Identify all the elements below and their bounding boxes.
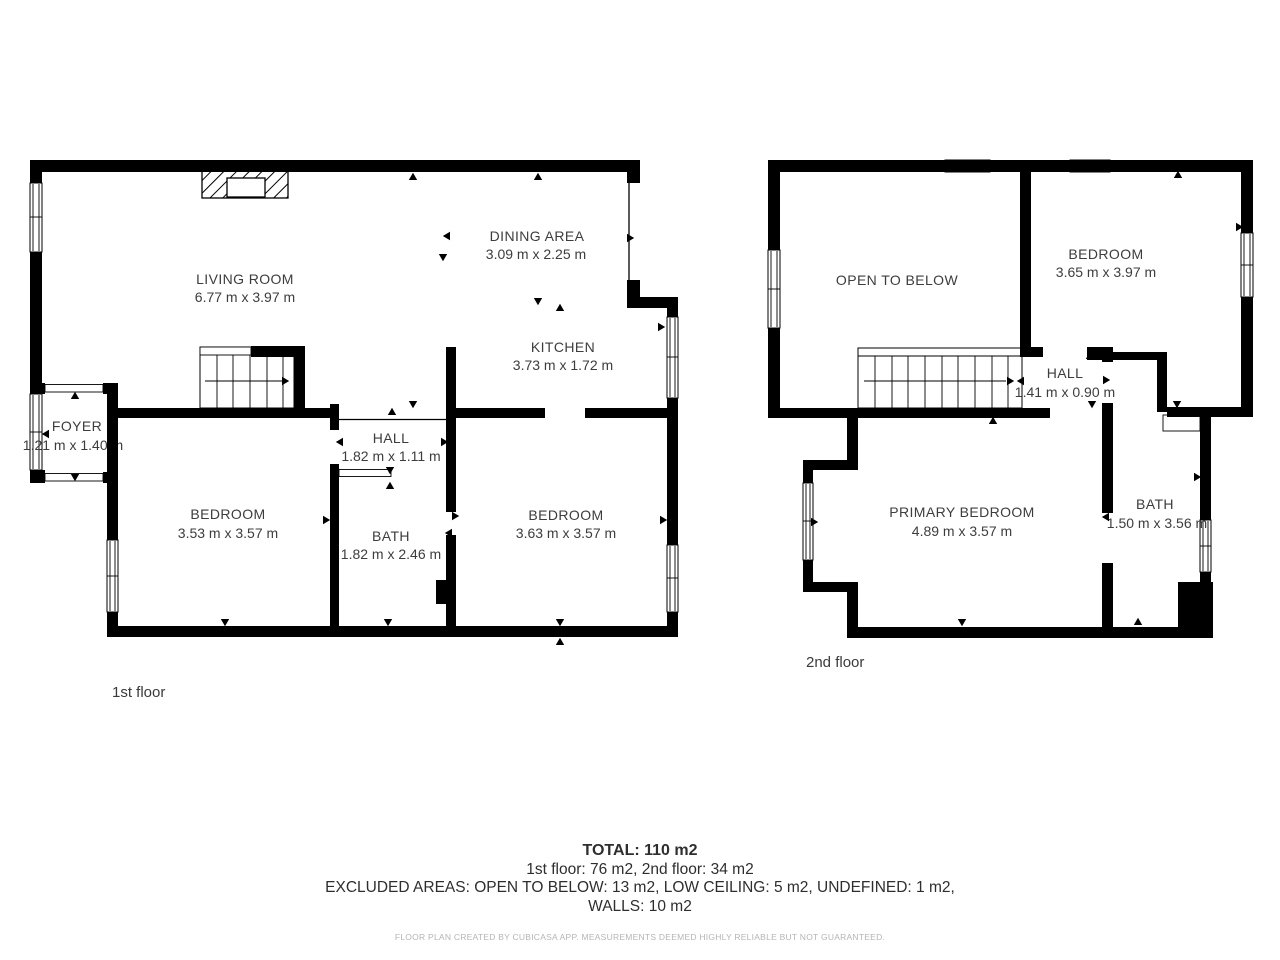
- room-dims-living-room: 6.77 m x 3.97 m: [195, 289, 295, 305]
- room-dims-hall-2f: 1.41 m x 0.90 m: [1015, 384, 1115, 400]
- room-label-bedroom-left: BEDROOM: [190, 506, 265, 522]
- room-dims-bedroom-right: 3.63 m x 3.57 m: [516, 525, 616, 541]
- room-label-kitchen: KITCHEN: [531, 339, 595, 355]
- open-boundaries: [338, 183, 629, 420]
- room-label-bedroom-2f: BEDROOM: [1068, 246, 1143, 262]
- floor-label-second: 2nd floor: [806, 654, 864, 671]
- floorplan-canvas: LIVING ROOM 6.77 m x 3.97 m DINING AREA …: [0, 0, 1280, 960]
- window: [30, 183, 42, 252]
- summary-walls-area: WALLS: 10 m2: [0, 898, 1280, 916]
- room-dims-bedroom-2f: 3.65 m x 3.97 m: [1056, 264, 1156, 280]
- fireplace: [202, 168, 288, 198]
- room-label-primary-bedroom: PRIMARY BEDROOM: [889, 504, 1035, 520]
- room-dims-bedroom-left: 3.53 m x 3.57 m: [178, 525, 278, 541]
- room-dims-kitchen: 3.73 m x 1.72 m: [513, 357, 613, 373]
- room-dims-bath-1f: 1.82 m x 2.46 m: [341, 546, 441, 562]
- window: [667, 317, 678, 398]
- room-label-bedroom-right: BEDROOM: [528, 507, 603, 523]
- summary-total: TOTAL: 110 m2: [0, 842, 1280, 860]
- room-label-living-room: LIVING ROOM: [196, 271, 294, 287]
- window: [768, 250, 780, 328]
- room-label-foyer: FOYER: [52, 418, 102, 434]
- room-dims-primary-bedroom: 4.89 m x 3.57 m: [912, 523, 1012, 539]
- floorplan-page: LIVING ROOM 6.77 m x 3.97 m DINING AREA …: [0, 0, 1280, 960]
- window: [667, 545, 678, 612]
- room-label-dining-area: DINING AREA: [490, 228, 585, 244]
- floor-label-first: 1st floor: [112, 684, 165, 701]
- room-label-bath-2f: BATH: [1136, 496, 1174, 512]
- window: [30, 394, 42, 470]
- room-dims-bath-2f: 1.50 m x 3.56 m: [1107, 515, 1207, 531]
- room-dims-dining-area: 3.09 m x 2.25 m: [486, 246, 586, 262]
- window: [1241, 233, 1253, 297]
- room-dims-hall-1f: 1.82 m x 1.11 m: [341, 448, 440, 464]
- room-label-bath-1f: BATH: [372, 528, 410, 544]
- window: [107, 540, 118, 612]
- summary-excluded-areas: EXCLUDED AREAS: OPEN TO BELOW: 13 m2, LO…: [0, 879, 1280, 897]
- summary-floor-areas: 1st floor: 76 m2, 2nd floor: 34 m2: [0, 861, 1280, 879]
- staircase-second-floor: [858, 348, 1024, 408]
- cubicasa-disclaimer: FLOOR PLAN CREATED BY CUBICASA APP. MEAS…: [0, 932, 1280, 942]
- room-label-hall-2f: HALL: [1047, 365, 1084, 381]
- room-label-hall-1f: HALL: [373, 430, 410, 446]
- room-label-open-to-below: OPEN TO BELOW: [836, 272, 959, 288]
- bath-closet: [1163, 415, 1200, 431]
